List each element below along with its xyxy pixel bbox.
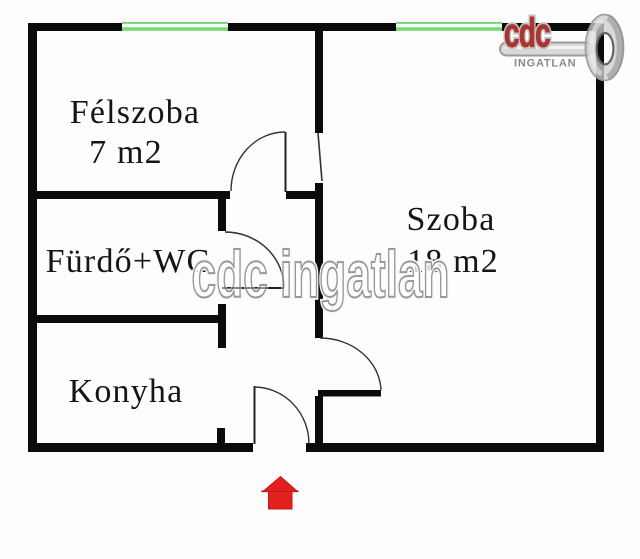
svg-text:Szoba: Szoba: [406, 201, 495, 238]
svg-text:7 m2: 7 m2: [89, 134, 163, 171]
svg-text:Fürdő+WC: Fürdő+WC: [46, 243, 211, 280]
svg-text:Félszoba: Félszoba: [70, 94, 200, 131]
svg-text:Konyha: Konyha: [69, 373, 184, 410]
svg-text:cdc ingatlan: cdc ingatlan: [192, 237, 450, 311]
svg-text:cdc: cdc: [504, 10, 550, 56]
svg-text:INGATLAN: INGATLAN: [514, 58, 576, 70]
